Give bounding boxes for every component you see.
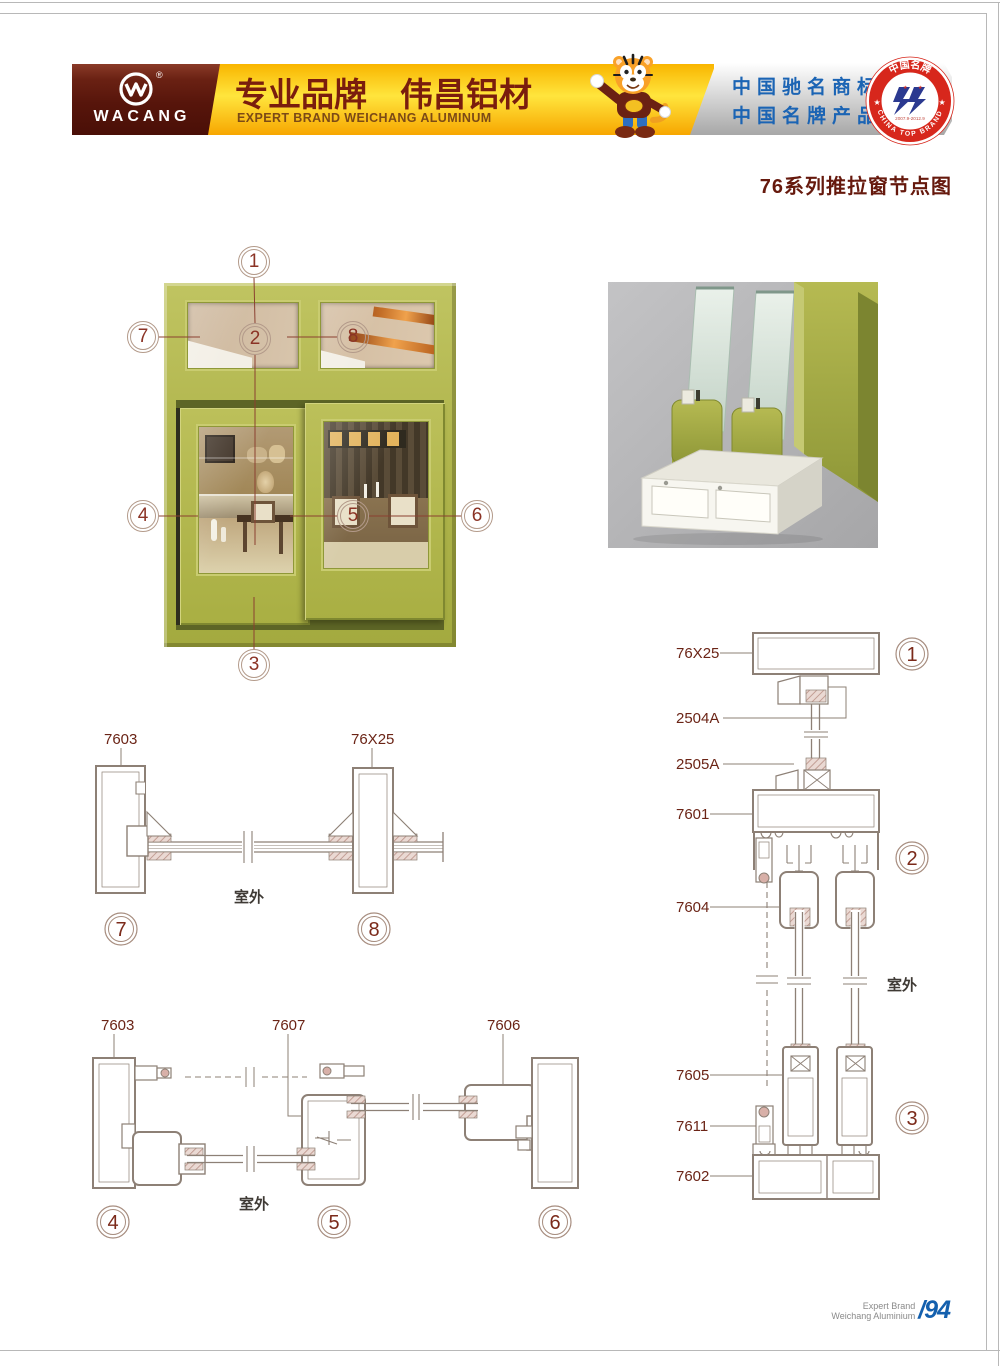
label-7603: 7603 bbox=[104, 731, 137, 748]
top-rule-inner bbox=[0, 13, 986, 14]
svg-text:8: 8 bbox=[368, 919, 379, 941]
footer: Expert Brand Weichang Aluminium /94 bbox=[640, 1296, 950, 1325]
bottom-rule bbox=[0, 1350, 1000, 1351]
top-rule-outer bbox=[0, 2, 1000, 3]
window-callout-lines bbox=[100, 240, 520, 700]
callout-circle-7: 7 bbox=[105, 913, 137, 945]
label-76x25: 76X25 bbox=[351, 731, 394, 748]
callout-8: 8 bbox=[337, 321, 369, 353]
china-top-brand-seal: 中国名牌 CHINA TOP BRAND ★ ★ ★ ★ 2007.9-2012… bbox=[865, 56, 955, 146]
callout-7: 7 bbox=[127, 321, 159, 353]
drawing-vertical-section: 76X25 2504A 2505A 7601 7604 7605 7611 76… bbox=[660, 620, 960, 1220]
svg-text:3: 3 bbox=[906, 1108, 917, 1130]
svg-text:1: 1 bbox=[906, 644, 917, 666]
drawing-a-geometry bbox=[96, 748, 443, 893]
callout-6: 6 bbox=[461, 500, 493, 532]
footer-brand-line1: Expert Brand bbox=[831, 1301, 915, 1311]
banner-slogan-cn: 专业品牌 伟昌铝材 bbox=[235, 68, 605, 116]
label-7604: 7604 bbox=[676, 899, 709, 916]
callout-leader-lines bbox=[159, 278, 461, 649]
label-7607: 7607 bbox=[272, 1017, 305, 1034]
drawing-b-geometry bbox=[93, 1034, 578, 1188]
callout-4: 4 bbox=[127, 500, 159, 532]
label-76x25-c: 76X25 bbox=[676, 645, 719, 662]
callout-circle-4: 4 bbox=[97, 1206, 129, 1238]
logo-wordmark: WACANG bbox=[72, 108, 212, 126]
seal-star-left: ★ bbox=[874, 98, 881, 107]
callout-circle-6: 6 bbox=[539, 1206, 571, 1238]
catalog-page: 专业品牌 伟昌铝材 EXPERT BRAND WEICHANG ALUMINUM… bbox=[0, 0, 1000, 1366]
callout-5: 5 bbox=[337, 500, 369, 532]
callout-circle-8: 8 bbox=[358, 913, 390, 945]
callout-circle-2: 2 bbox=[896, 842, 928, 874]
svg-text:2: 2 bbox=[906, 848, 917, 870]
label-7605: 7605 bbox=[676, 1067, 709, 1084]
profile-3d-render bbox=[608, 282, 878, 548]
label-7606: 7606 bbox=[487, 1017, 520, 1034]
callout-2: 2 bbox=[239, 323, 271, 355]
drawing-horizontal-section-bottom: 7603 7607 7606 室外 4 5 6 bbox=[75, 1000, 675, 1250]
callout-1: 1 bbox=[238, 246, 270, 278]
page-title: 76系列推拉窗节点图 bbox=[552, 170, 952, 199]
seal-star-right: ★ bbox=[939, 98, 946, 107]
label-2505a: 2505A bbox=[676, 756, 719, 773]
right-rule-outer bbox=[998, 2, 999, 1366]
svg-text:7: 7 bbox=[115, 919, 126, 941]
label-7611: 7611 bbox=[676, 1118, 708, 1135]
tiger-mascot-icon bbox=[583, 50, 683, 144]
label-7602: 7602 bbox=[676, 1168, 709, 1185]
banner-slogan-en: EXPERT BRAND WEICHANG ALUMINUM bbox=[237, 111, 607, 125]
wacang-logo-icon: ® bbox=[72, 64, 212, 110]
label-7601: 7601 bbox=[676, 806, 709, 823]
registered-mark: ® bbox=[156, 70, 163, 80]
callout-3: 3 bbox=[238, 649, 270, 681]
callout-circle-3: 3 bbox=[896, 1102, 928, 1134]
drawing-horizontal-section-top: 7603 76X25 室外 7 8 bbox=[75, 700, 475, 960]
outdoor-label-c: 室外 bbox=[887, 976, 917, 994]
label-7603-b: 7603 bbox=[101, 1017, 134, 1034]
svg-text:6: 6 bbox=[549, 1212, 560, 1234]
seal-star-small-2: ★ bbox=[918, 85, 923, 91]
seal-dates: 2007.9-2012.9 bbox=[895, 116, 925, 121]
label-2504a: 2504A bbox=[676, 710, 719, 727]
callout-circle-1: 1 bbox=[896, 638, 928, 670]
footer-brand-line2: Weichang Aluminium bbox=[831, 1311, 915, 1321]
svg-text:4: 4 bbox=[107, 1212, 118, 1234]
footer-brand: Expert Brand Weichang Aluminium bbox=[831, 1301, 915, 1321]
outdoor-label: 室外 bbox=[234, 888, 264, 906]
drawing-c-geometry bbox=[710, 633, 879, 1199]
header: 专业品牌 伟昌铝材 EXPERT BRAND WEICHANG ALUMINUM… bbox=[65, 62, 955, 140]
svg-text:5: 5 bbox=[328, 1212, 339, 1234]
seal-star-small-1: ★ bbox=[903, 85, 908, 91]
logo-block: ® WACANG bbox=[72, 64, 220, 135]
outdoor-label-b: 室外 bbox=[239, 1195, 269, 1213]
callout-circle-5: 5 bbox=[318, 1206, 350, 1238]
right-rule-inner bbox=[986, 13, 987, 1350]
page-number: /94 bbox=[918, 1296, 950, 1325]
